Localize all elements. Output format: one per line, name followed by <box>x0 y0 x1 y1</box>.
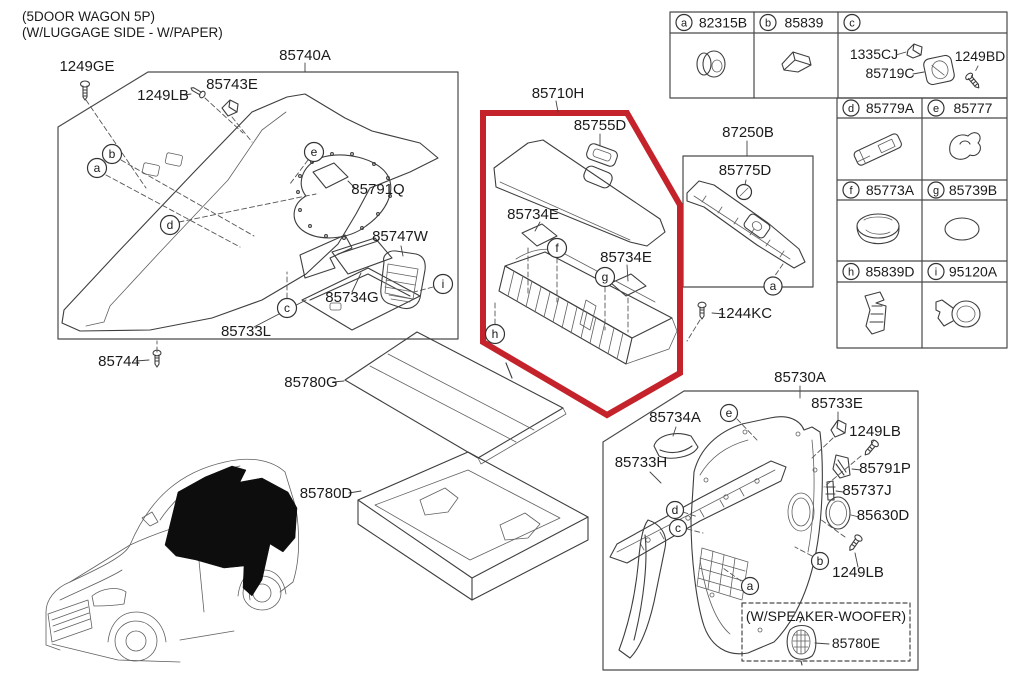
svg-text:b: b <box>817 554 824 568</box>
sill-trim-85733H <box>610 461 786 563</box>
luggage-board <box>494 140 665 246</box>
svg-text:i: i <box>442 277 445 291</box>
svg-text:e: e <box>311 145 318 159</box>
svg-text:a: a <box>94 161 101 175</box>
ref-circle-d1: d <box>161 216 180 235</box>
label-1249LB-r1: 1249LB <box>849 423 901 440</box>
pad-85734E-g <box>611 274 646 296</box>
label-1249BD: 1249BD <box>955 48 1006 64</box>
label-85755D: 85755D <box>574 117 627 134</box>
table-part-85739B: 85739B <box>949 182 997 198</box>
table-part-85773A: 85773A <box>866 182 915 198</box>
page-title-line2: (W/LUGGAGE SIDE - W/PAPER) <box>22 25 223 40</box>
highlighted-trim-zone <box>165 466 297 596</box>
label-85780E: 85780E <box>832 635 880 651</box>
svg-text:c: c <box>675 521 681 535</box>
label-85743E: 85743E <box>206 76 258 93</box>
table-part-95120A: 95120A <box>949 264 998 280</box>
label-85744: 85744 <box>98 353 140 370</box>
svg-text:b: b <box>109 147 116 161</box>
pad-85791P <box>833 455 850 478</box>
ref-circle-a2: a <box>764 277 782 295</box>
label-85780G: 85780G <box>284 374 337 391</box>
screw-icon-85744 <box>153 350 161 367</box>
woofer-speaker-85780E <box>787 618 816 665</box>
label-85719C: 85719C <box>865 65 914 81</box>
grommet-icon <box>697 51 725 77</box>
label-85733H: 85733H <box>615 454 668 471</box>
label-85734E-g: 85734E <box>600 249 652 266</box>
label-85791P: 85791P <box>859 460 911 477</box>
speaker-seal-85630D <box>826 497 850 529</box>
svg-text:d: d <box>167 218 174 232</box>
cargo-mat-85780G <box>345 332 566 464</box>
table-letter-b: b <box>765 18 771 30</box>
label-85730A: 85730A <box>774 369 826 386</box>
handle-85755D <box>585 142 619 167</box>
screw-icon-1249LB-r2 <box>847 534 864 553</box>
svg-text:c: c <box>284 301 290 315</box>
ref-circle-b1: b <box>103 145 122 164</box>
label-1335CJ: 1335CJ <box>850 46 898 62</box>
svg-text:e: e <box>726 406 733 420</box>
label-85734A: 85734A <box>649 409 701 426</box>
retainer-symbol-85775D <box>737 185 752 200</box>
label-85775D: 85775D <box>719 162 772 179</box>
label-85734E-f: 85734E <box>507 206 559 223</box>
label-1249LB-r2: 1249LB <box>832 564 884 581</box>
ref-circle-a3: a <box>742 578 759 595</box>
table-part-85839D: 85839D <box>865 264 914 280</box>
cowl-recess <box>743 213 772 240</box>
folded-clip-icon <box>865 292 886 334</box>
svg-text:a: a <box>747 579 754 593</box>
label-1244KC: 1244KC <box>718 305 772 322</box>
ref-circle-e1: e <box>305 143 324 162</box>
pillar-trim-leg <box>619 520 666 658</box>
svg-text:d: d <box>848 103 854 115</box>
label-85710H: 85710H <box>532 85 585 102</box>
parts-diagram-page: a 82315B b 85839 c 1335CJ 85719C 1249BD <box>0 0 1024 696</box>
label-85734G: 85734G <box>325 289 378 306</box>
screw-icon-1244KC <box>698 302 706 319</box>
label-87250B: 87250B <box>722 124 774 141</box>
table-part-85777: 85777 <box>954 100 993 116</box>
table-letter-a: a <box>681 18 688 30</box>
screw-icon-1249BD <box>964 72 981 91</box>
screw-icon-1249GE <box>81 81 90 100</box>
label-1249LB-tl: 1249LB <box>137 87 189 104</box>
label-85733E: 85733E <box>811 395 863 412</box>
fastener-table: a 82315B b 85839 c 1335CJ 85719C 1249BD <box>670 12 1007 348</box>
luggage-side-tray <box>499 249 677 364</box>
step-garnish <box>300 235 352 278</box>
pad-85791Q <box>313 163 348 188</box>
bolt-icon-1249LB-topleft <box>189 85 206 99</box>
svg-text:h: h <box>848 267 854 279</box>
screw-icon-1249LB-r1 <box>862 439 879 458</box>
wire-clip-icon <box>950 133 981 160</box>
label-85737J: 85737J <box>842 482 891 499</box>
table-part-85839: 85839 <box>785 15 824 31</box>
ref-circle-a1: a <box>88 159 107 178</box>
ref-circle-c1: c <box>278 299 297 318</box>
speaker-woofer-caption: (W/SPEAKER-WOOFER) <box>746 608 906 624</box>
ref-circle-e2: e <box>721 405 738 422</box>
oval-plug-icon <box>945 218 979 240</box>
svg-text:i: i <box>935 267 937 279</box>
svg-text:g: g <box>602 270 609 284</box>
ref-circle-f: f <box>548 239 567 258</box>
round-cap-icon <box>857 214 899 244</box>
clip-icon-85743E <box>222 100 238 116</box>
diagram-canvas: a 82315B b 85839 c 1335CJ 85719C 1249BD <box>0 0 1024 696</box>
power-outlet-icon <box>936 300 980 327</box>
label-85733L: 85733L <box>221 323 271 340</box>
table-part-85779A: 85779A <box>866 100 915 116</box>
small-clip-icon <box>907 44 922 58</box>
ref-circle-d2: d <box>667 502 684 519</box>
ref-circle-i1: i <box>434 275 453 294</box>
svg-text:e: e <box>933 103 939 115</box>
ref-circle-b2: b <box>812 553 829 570</box>
ref-circle-c2: c <box>670 520 687 537</box>
svg-text:d: d <box>672 503 679 517</box>
page-title-line1: (5DOOR WAGON 5P) <box>22 9 155 24</box>
ref-circle-h: h <box>486 325 505 344</box>
ref-circle-g: g <box>596 268 615 287</box>
svg-text:a: a <box>770 279 777 293</box>
label-85791Q: 85791Q <box>351 181 404 198</box>
label-1249GE: 1249GE <box>59 58 114 75</box>
label-85740A: 85740A <box>279 47 331 64</box>
table-letter-c: c <box>849 18 855 30</box>
part-labels: (5DOOR WAGON 5P) (W/LUGGAGE SIDE - W/PAP… <box>22 9 911 651</box>
svg-text:g: g <box>933 185 939 197</box>
label-85747W: 85747W <box>372 228 429 245</box>
vehicle-sketch <box>46 459 299 662</box>
mat-pin <box>506 363 512 378</box>
table-part-82315B: 82315B <box>699 15 747 31</box>
clip-85733E <box>831 420 846 437</box>
retainer-icon <box>853 133 903 167</box>
label-85780D: 85780D <box>300 485 353 502</box>
luggage-hook-icon <box>923 54 956 85</box>
luggage-tray-85780D <box>358 452 588 600</box>
label-85630D: 85630D <box>857 507 910 524</box>
svg-text:h: h <box>492 327 499 341</box>
clip-icon <box>782 52 811 72</box>
